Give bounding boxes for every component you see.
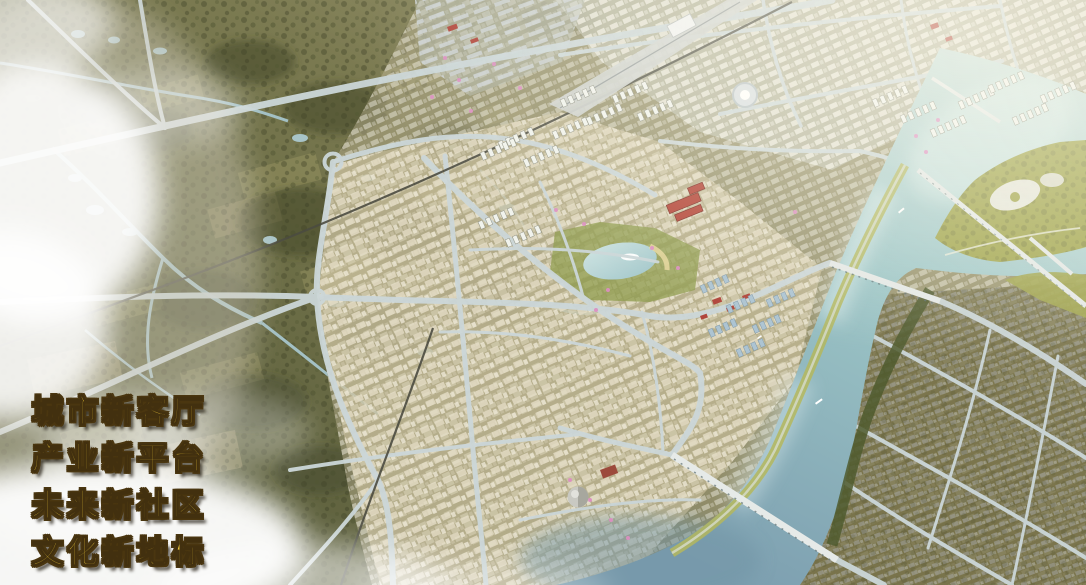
cityscape-illustration <box>0 0 1086 585</box>
light-sheen <box>0 0 1086 585</box>
aerial-masterplan-render: 城市新客厅 产业新平台 未来新社区 文化新地标 <box>0 0 1086 585</box>
